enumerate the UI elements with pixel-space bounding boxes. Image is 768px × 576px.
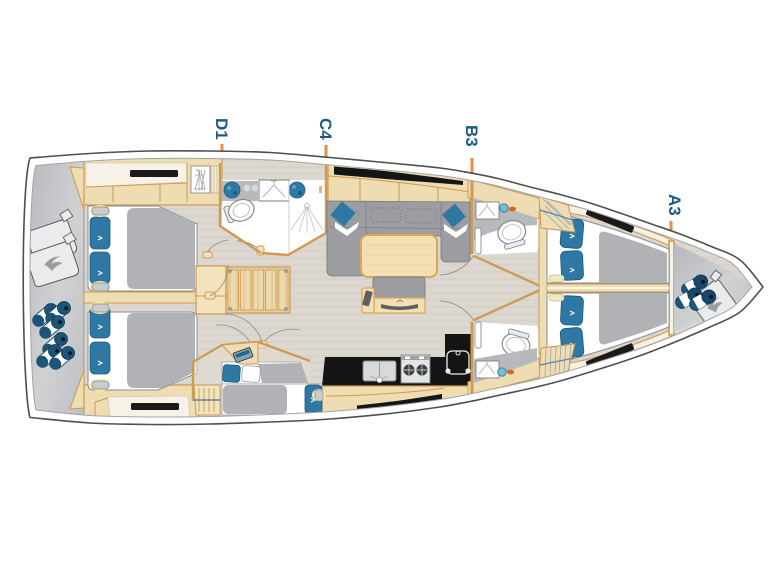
svg-text:A3: A3 xyxy=(665,194,684,216)
svg-text:C4: C4 xyxy=(316,118,335,140)
svg-text:B3: B3 xyxy=(462,125,481,147)
svg-text:D1: D1 xyxy=(212,118,231,140)
